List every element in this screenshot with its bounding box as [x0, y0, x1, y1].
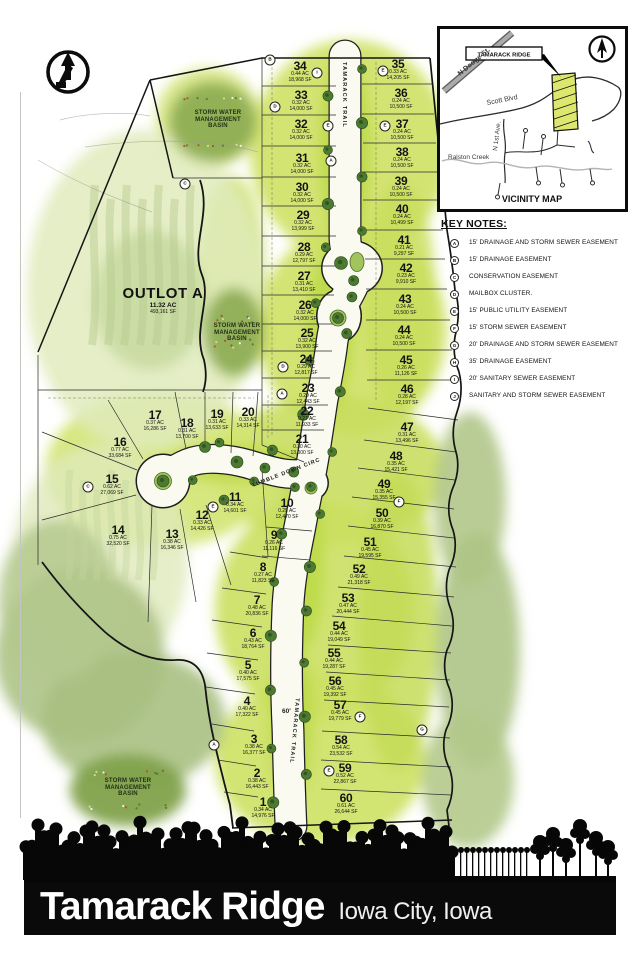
key-note-badge-G: G: [450, 341, 459, 350]
key-marker-D: D: [278, 362, 289, 373]
storm-water-basin-label-1: STORM WATERMANAGEMENTBASIN: [195, 110, 242, 130]
key-marker-E: E: [208, 502, 219, 513]
project-location: Iowa City, Iowa: [338, 898, 491, 926]
key-note-E: E15' PUBLIC UTILITY EASEMENT: [441, 307, 638, 316]
key-note-text: 15' STORM SEWER EASEMENT: [469, 324, 567, 333]
key-marker-A: A: [326, 156, 337, 167]
vicinity-map-title: VICINITY MAP: [502, 194, 562, 204]
key-marker-C: C: [83, 482, 94, 493]
key-marker-F: F: [355, 712, 366, 723]
key-note-D: DMAILBOX CLUSTER.: [441, 290, 638, 299]
vicinity-map-drawing: TAMARACK RIDGE N Dodge St. Scott Blvd N …: [440, 29, 625, 209]
street-width-label: 60': [282, 708, 291, 715]
plat-sheet: OUTLOT A 11.32 AC 493,161 SF TAMARACK TR…: [0, 0, 639, 959]
key-note-text: 15' DRAINAGE AND STORM SEWER EASEMENT: [469, 239, 618, 248]
sheet-edge-line: [20, 92, 21, 818]
key-notes-panel: KEY NOTES: A15' DRAINAGE AND STORM SEWER…: [441, 218, 638, 409]
site-parcel-hatched: [552, 73, 578, 131]
key-note-text: 15' DRAINAGE EASEMENT: [469, 256, 552, 265]
key-note-text: 15' PUBLIC UTILITY EASEMENT: [469, 307, 567, 316]
minor-roads: [496, 129, 595, 200]
key-note-text: MAILBOX CLUSTER.: [469, 290, 532, 299]
outlot-name: OUTLOT A: [123, 285, 204, 302]
key-note-F: F15' STORM SEWER EASEMENT: [441, 324, 638, 333]
key-note-J: JSANITARY AND STORM SEWER EASEMENT: [441, 392, 638, 401]
key-note-badge-H: H: [450, 358, 459, 367]
north-arrow-icon: [44, 48, 92, 96]
key-note-G: G20' DRAINAGE AND STORM SEWER EASEMENT: [441, 341, 638, 350]
outlot-sqft: 493,161 SF: [123, 309, 204, 315]
key-marker-A: A: [209, 740, 220, 751]
storm-water-basin-label-3: STORM WATERMANAGEMENTBASIN: [105, 778, 152, 798]
key-marker-E: E: [378, 66, 389, 77]
key-note-badge-B: B: [450, 256, 459, 265]
key-note-badge-F: F: [450, 324, 459, 333]
storm-water-basin-label-2: STORM WATERMANAGEMENTBASIN: [214, 323, 261, 343]
label-scott-blvd: Scott Blvd: [486, 94, 518, 107]
key-note-text: 20' SANITARY SEWER EASEMENT: [469, 375, 575, 384]
key-note-B: B15' DRAINAGE EASEMENT: [441, 256, 638, 265]
outlot-acreage: 11.32 AC: [123, 302, 204, 309]
key-note-text: SANITARY AND STORM SEWER EASEMENT: [469, 392, 605, 401]
label-n-1st-ave: N 1st Ave.: [492, 121, 503, 151]
street-label-tamarack-trail-north: TAMARACK TRAIL: [341, 62, 347, 128]
key-marker-C: C: [180, 179, 191, 190]
key-note-text: CONSERVATION EASEMENT: [469, 273, 558, 282]
key-notes-list: A15' DRAINAGE AND STORM SEWER EASEMENTB1…: [441, 239, 638, 401]
key-marker-E: E: [324, 766, 335, 777]
key-note-A: A15' DRAINAGE AND STORM SEWER EASEMENT: [441, 239, 638, 248]
project-title: Tamarack Ridge: [40, 882, 324, 932]
vicinity-map: TAMARACK RIDGE N Dodge St. Scott Blvd N …: [437, 26, 628, 212]
road-scott-blvd: [440, 77, 621, 124]
key-marker-F: F: [394, 497, 405, 508]
key-note-badge-J: J: [450, 392, 459, 401]
key-marker-E: E: [323, 121, 334, 132]
key-note-badge-A: A: [450, 239, 459, 248]
vicinity-north-pointer-icon: [590, 37, 615, 62]
key-note-text: 35' DRAINAGE EASEMENT: [469, 358, 552, 367]
key-note-I: I20' SANITARY SEWER EASEMENT: [441, 375, 638, 384]
key-marker-B: B: [265, 55, 276, 66]
key-note-text: 20' DRAINAGE AND STORM SEWER EASEMENT: [469, 341, 618, 350]
key-marker-D: D: [270, 102, 281, 113]
road-n-1st-ave: [504, 119, 506, 183]
key-note-badge-I: I: [450, 375, 459, 384]
key-note-C: CCONSERVATION EASEMENT: [441, 273, 638, 282]
key-marker-I: I: [312, 68, 323, 79]
title-bar: Tamarack Ridge Iowa City, Iowa: [24, 882, 616, 935]
key-note-badge-C: C: [450, 273, 459, 282]
key-marker-E: E: [380, 121, 391, 132]
label-ralston-creek: Ralston Creek: [448, 154, 490, 161]
outlot-label: OUTLOT A 11.32 AC 493,161 SF: [123, 285, 204, 315]
key-note-badge-D: D: [450, 290, 459, 299]
key-note-H: H35' DRAINAGE EASEMENT: [441, 358, 638, 367]
key-notes-title: KEY NOTES:: [441, 218, 638, 230]
key-marker-A: A: [277, 389, 288, 400]
key-note-badge-E: E: [450, 307, 459, 316]
key-marker-G: G: [417, 725, 428, 736]
